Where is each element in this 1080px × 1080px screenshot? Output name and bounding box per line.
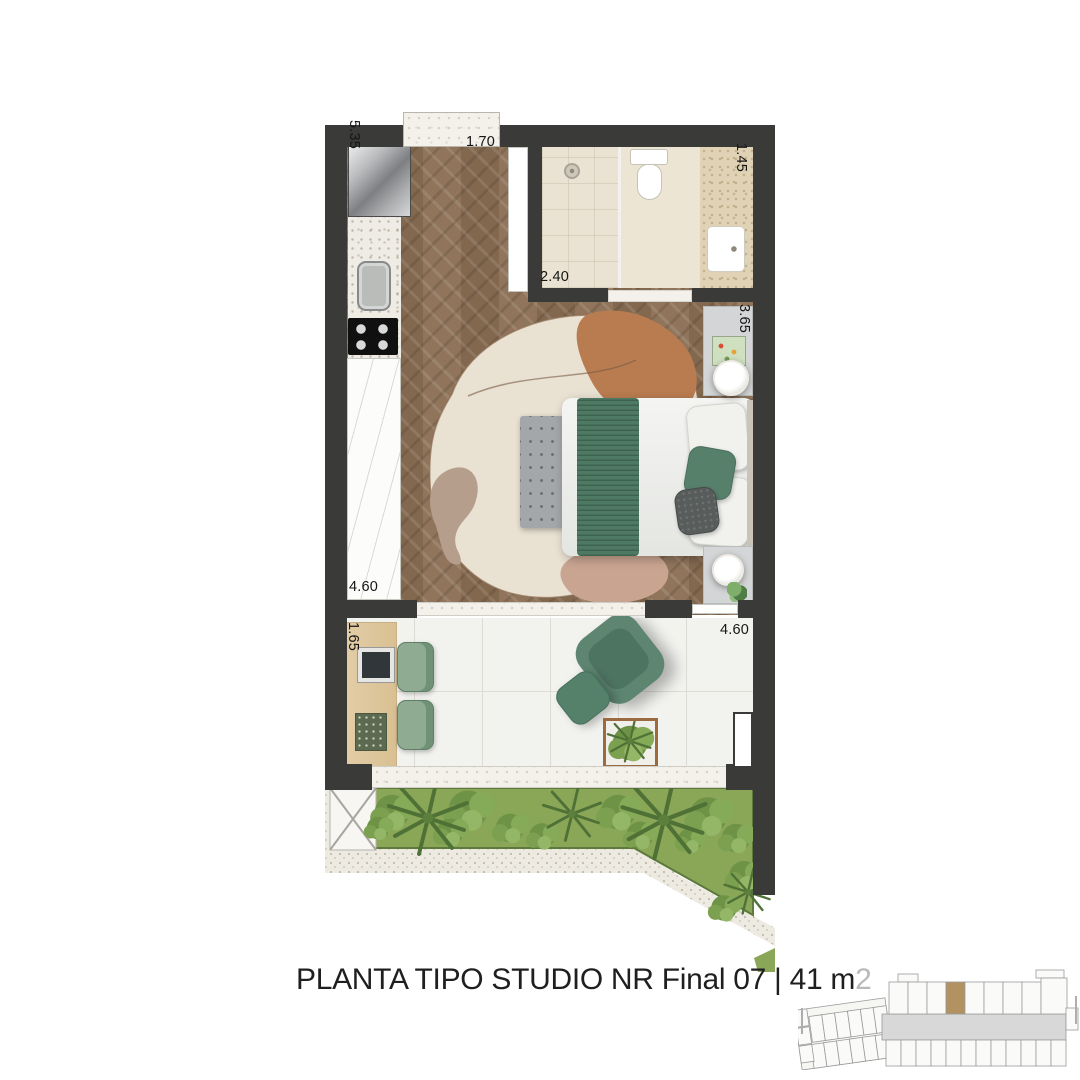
floor-plan-canvas: 5.35 1.70 1.45 2.40 3.65 4.60 1.65 4.60 … <box>0 0 1080 1080</box>
wall-divider-mid <box>645 600 692 618</box>
desk-chair-2 <box>397 700 434 750</box>
wall-bottom-left <box>336 764 372 790</box>
dim-bath-inner: 2.40 <box>540 269 569 285</box>
planter-plant <box>606 721 655 765</box>
site-unit-highlight <box>946 982 965 1014</box>
bed-pillow-knit <box>673 485 721 536</box>
toilet-bowl <box>637 164 662 200</box>
street-label-left <box>801 1008 803 1034</box>
wall-divider-right <box>738 600 755 618</box>
site-right-block <box>882 970 1078 1066</box>
desk-chair-1 <box>397 642 434 692</box>
bathroom-door-threshold <box>608 290 692 302</box>
dim-desk-side: 1.65 <box>345 622 361 651</box>
wall-left <box>325 125 347 790</box>
technical-shaft-x <box>330 788 376 850</box>
shower-drain-icon <box>564 163 580 179</box>
dim-bath-right: 1.45 <box>733 143 749 172</box>
dim-kitchen-side: 5.35 <box>346 120 362 149</box>
site-block-bottom-row <box>886 1040 1066 1066</box>
terrace-door-sill <box>372 766 726 788</box>
dim-bedroom-right: 3.65 <box>736 304 752 333</box>
nightstand-plant-icon <box>727 582 747 602</box>
wardrobe <box>347 358 401 600</box>
kitchen-sink <box>357 261 391 311</box>
laptop-screen <box>362 652 390 678</box>
desk-book <box>355 713 387 751</box>
cooktop <box>348 318 398 355</box>
refrigerator <box>348 142 411 217</box>
wall-bathroom-bottom-right <box>692 288 755 302</box>
bed-bench <box>520 416 564 528</box>
wall-right <box>753 125 775 895</box>
side-door-opening <box>733 712 753 768</box>
dim-terrace-right: 4.60 <box>720 622 749 638</box>
bathroom-floor <box>621 147 700 288</box>
site-corridor <box>882 1014 1066 1040</box>
bed-throw-blanket <box>577 398 639 556</box>
divider-glazing <box>692 604 738 614</box>
plan-title: PLANTA TIPO STUDIO NR Final 07 | 41 m2 <box>296 963 871 997</box>
bathroom-sink <box>707 226 745 272</box>
plan-title-text: PLANTA TIPO STUDIO NR Final 07 | 41 m <box>296 963 855 996</box>
site-key-plan <box>798 962 1080 1070</box>
wall-divider-left <box>347 600 417 618</box>
site-block-top-row <box>889 978 1067 1014</box>
terrace-planter <box>603 718 658 768</box>
laptop <box>357 647 395 683</box>
bathroom-area <box>542 147 753 288</box>
street-label-right <box>1075 996 1077 1024</box>
site-left-wing <box>798 998 893 1070</box>
shower-glass-partition <box>618 147 621 288</box>
toilet-tank <box>630 149 668 165</box>
sliding-door-sill <box>417 602 645 616</box>
wall-bathroom-bottom-left <box>528 288 608 302</box>
hall-window <box>508 147 528 292</box>
table-lamp-top <box>713 360 749 396</box>
shower-floor <box>542 147 618 288</box>
garden-area <box>320 780 780 980</box>
dim-entry-top: 1.70 <box>466 134 495 150</box>
dim-wardrobe-side: 4.60 <box>349 579 378 595</box>
